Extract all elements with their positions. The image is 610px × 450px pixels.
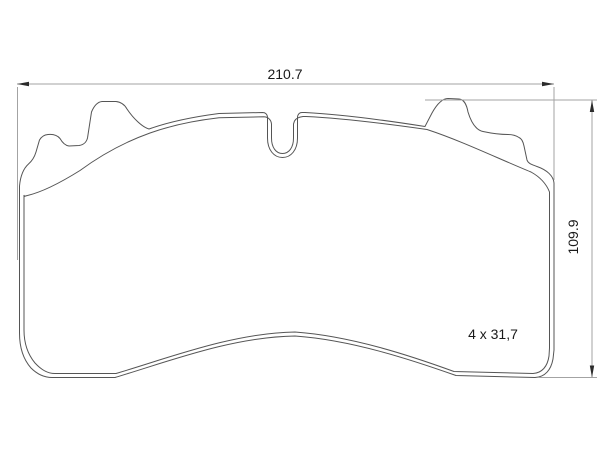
width-dimension: 210.7 <box>17 66 554 260</box>
width-dimension-label: 210.7 <box>267 66 302 82</box>
height-dimension-label: 109.9 <box>565 219 581 254</box>
thickness-label: 4 x 31,7 <box>468 326 518 342</box>
width-arrow-right-icon <box>542 82 554 86</box>
brake-pad-technical-drawing: 210.7 109.9 4 x 31,7 <box>0 0 610 450</box>
height-arrow-top-icon <box>590 100 594 112</box>
drawing-canvas: 210.7 109.9 4 x 31,7 <box>0 0 610 450</box>
width-arrow-left-icon <box>17 82 29 86</box>
height-arrow-bottom-icon <box>590 366 594 378</box>
